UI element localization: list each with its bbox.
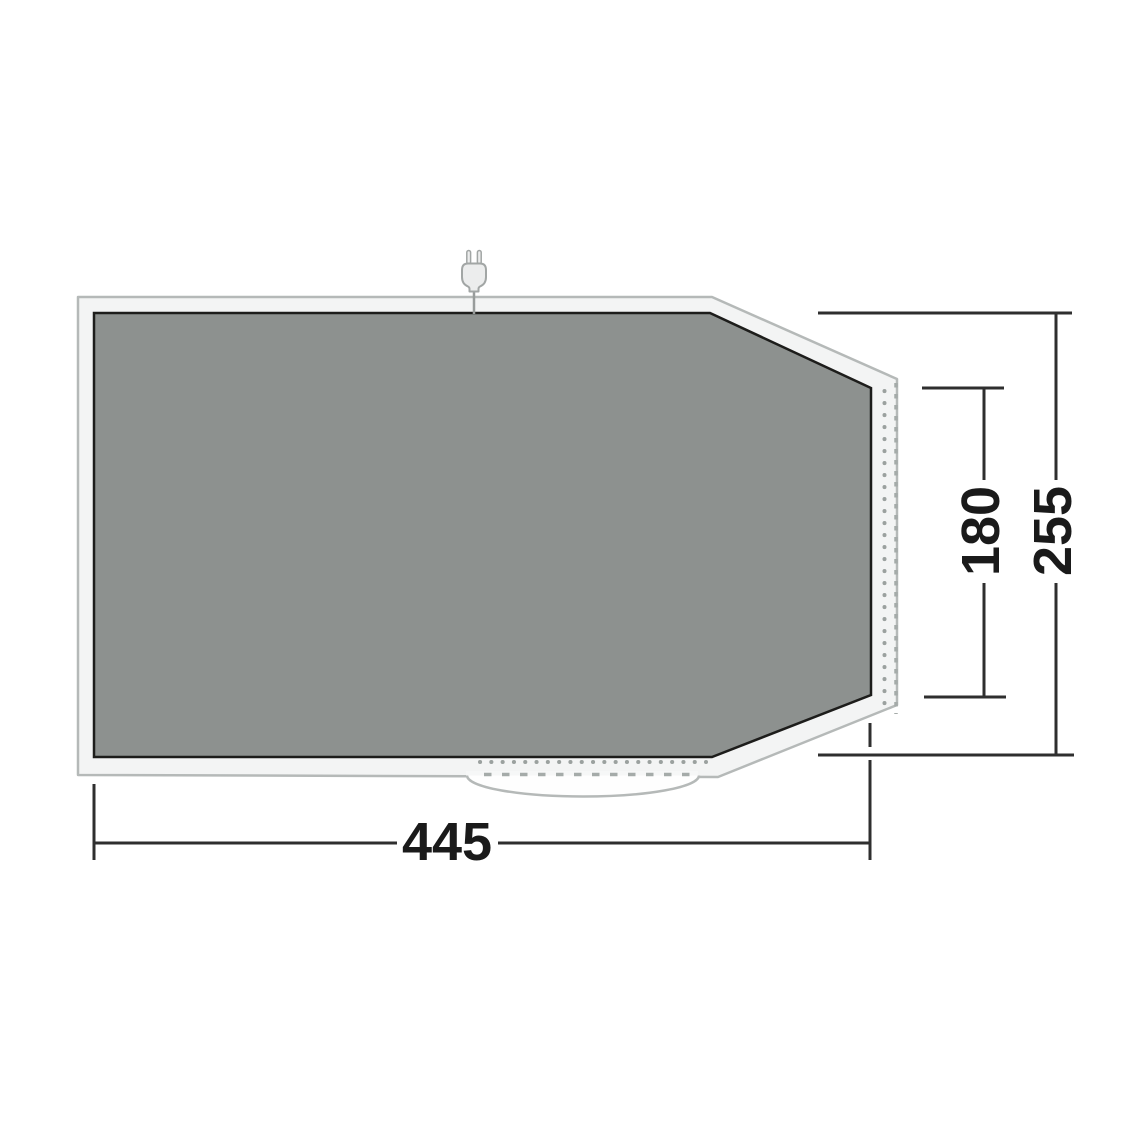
- plug-prong-left: [467, 251, 471, 265]
- groundsheet: [94, 313, 871, 757]
- product-dimension-diagram: 445 180 255: [0, 0, 1140, 1140]
- dimension-inner-height-label: 180: [954, 486, 1008, 576]
- plug-prong-right: [477, 251, 481, 265]
- dimension-total-height-label: 255: [1026, 486, 1080, 576]
- dimension-width-label: 445: [402, 815, 492, 869]
- plug-body: [462, 264, 486, 292]
- door-arc: [467, 776, 699, 797]
